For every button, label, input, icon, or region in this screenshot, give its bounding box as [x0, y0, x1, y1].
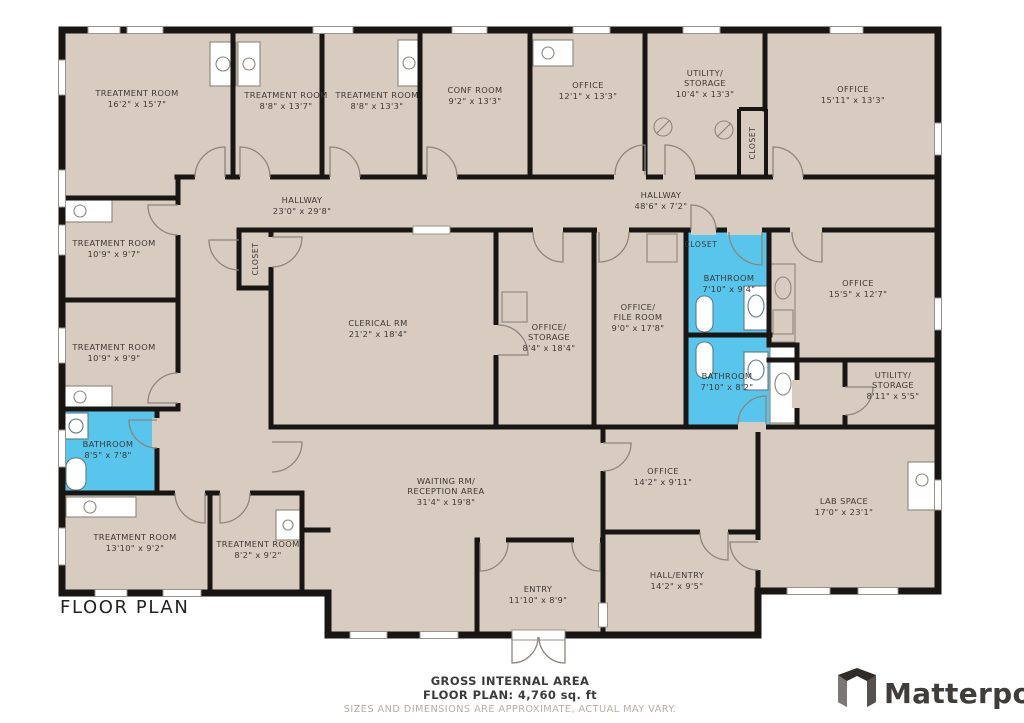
svg-text:8'4" x 18'4": 8'4" x 18'4"	[523, 343, 576, 353]
svg-text:10'9" x 9'9": 10'9" x 9'9"	[88, 353, 141, 363]
svg-text:8'2" x 9'2": 8'2" x 9'2"	[234, 550, 281, 560]
svg-text:11'10" x 8'9": 11'10" x 8'9"	[509, 595, 568, 605]
svg-text:STORAGE: STORAGE	[872, 380, 914, 390]
room-label-bathroom-1: BATHROOM 7'10" x 9'4"	[703, 273, 756, 294]
svg-text:10'4" x 13'3": 10'4" x 13'3"	[676, 89, 735, 99]
pass-through-window	[413, 226, 450, 234]
svg-text:8'11" x 5'5": 8'11" x 5'5"	[867, 391, 920, 401]
svg-text:OFFICE: OFFICE	[647, 466, 679, 476]
closet-label-middle: CLOSET	[251, 242, 260, 275]
svg-text:8'5" x 7'8": 8'5" x 7'8"	[84, 450, 131, 460]
svg-text:17'0" x 23'1": 17'0" x 23'1"	[815, 507, 874, 517]
svg-text:HALLWAY: HALLWAY	[282, 195, 323, 205]
svg-text:BATHROOM: BATHROOM	[83, 439, 134, 449]
svg-text:TREATMENT ROOM: TREATMENT ROOM	[94, 88, 178, 98]
room-label-hallway-east: HALLWAY 48'6" x 7'2"	[635, 190, 688, 211]
svg-text:48'6" x 7'2": 48'6" x 7'2"	[635, 201, 688, 211]
svg-text:WAITING RM/: WAITING RM/	[417, 476, 475, 486]
svg-text:12'1" x 13'3": 12'1" x 13'3"	[559, 91, 618, 101]
entry-double-door	[512, 637, 538, 663]
svg-text:OFFICE/: OFFICE/	[621, 302, 656, 312]
closet-label-top-right: CLOSET	[748, 126, 757, 159]
toilet	[66, 458, 86, 490]
disclaimer-text: SIZES AND DIMENSIONS ARE APPROXIMATE, AC…	[344, 704, 677, 715]
svg-text:13'10" x 9'2": 13'10" x 9'2"	[106, 543, 165, 553]
matterport-logo-icon	[838, 668, 876, 707]
matterport-logo: Matterport	[838, 668, 1024, 710]
svg-text:7'10" x 9'4": 7'10" x 9'4"	[703, 284, 756, 294]
toilet	[696, 296, 713, 332]
svg-text:7'10" x 8'2": 7'10" x 8'2"	[701, 382, 754, 392]
room-label-treatment-room-1: TREATMENT ROOM 16'2" x 15'7"	[94, 88, 178, 109]
svg-text:BATHROOM: BATHROOM	[702, 371, 753, 381]
svg-text:STORAGE: STORAGE	[528, 332, 570, 342]
room-label-clerical-room: CLERICAL RM 21'2" x 18'4"	[348, 318, 407, 339]
svg-text:HALLWAY: HALLWAY	[641, 190, 682, 200]
svg-text:14'2" x 9'11": 14'2" x 9'11"	[634, 477, 693, 487]
room-label-bathroom-3: BATHROOM 8'5" x 7'8"	[83, 439, 134, 460]
room-label-lab-space: LAB SPACE 17'0" x 23'1"	[815, 496, 874, 517]
svg-text:CONF ROOM: CONF ROOM	[447, 85, 502, 95]
sink-counter	[66, 497, 136, 517]
cabinet	[647, 234, 677, 262]
svg-text:BATHROOM: BATHROOM	[704, 273, 755, 283]
shelf	[502, 292, 527, 322]
svg-text:RECEPTION AREA: RECEPTION AREA	[407, 486, 484, 496]
svg-text:15'11" x 13'3": 15'11" x 13'3"	[821, 95, 885, 105]
room-label-hall-entry: HALL/ENTRY 14'2" x 9'5"	[650, 570, 705, 591]
closet-label-bathroom: CLOSET	[684, 240, 717, 249]
svg-text:8'8" x 13'3": 8'8" x 13'3"	[351, 101, 404, 111]
svg-text:21'2" x 18'4": 21'2" x 18'4"	[349, 329, 408, 339]
svg-text:ENTRY: ENTRY	[524, 584, 553, 594]
floor-plan-area-value: FLOOR PLAN: 4,760 sq. ft	[423, 688, 597, 702]
svg-text:LAB SPACE: LAB SPACE	[820, 496, 868, 506]
svg-text:23'0" x 29'8": 23'0" x 29'8"	[273, 206, 332, 216]
svg-text:OFFICE: OFFICE	[572, 80, 604, 90]
svg-text:UTILITY/: UTILITY/	[687, 68, 723, 78]
sink-counter	[64, 386, 112, 408]
svg-text:14'2" x 9'5": 14'2" x 9'5"	[651, 581, 704, 591]
svg-text:TREATMENT ROOM: TREATMENT ROOM	[243, 90, 327, 100]
svg-text:8'8" x 13'7": 8'8" x 13'7"	[260, 101, 313, 111]
svg-text:TREATMENT ROOM: TREATMENT ROOM	[71, 342, 155, 352]
sink-counter	[64, 200, 112, 222]
svg-text:UTILITY/: UTILITY/	[875, 370, 911, 380]
page-title: FLOOR PLAN	[60, 597, 189, 618]
room-label-conf-room: CONF ROOM 9'2" x 13'3"	[447, 85, 502, 106]
svg-text:CLERICAL RM: CLERICAL RM	[348, 318, 407, 328]
room-label-bathroom-2: BATHROOM 7'10" x 8'2"	[701, 371, 754, 392]
svg-text:HALL/ENTRY: HALL/ENTRY	[650, 570, 705, 580]
svg-text:15'5" x 12'7": 15'5" x 12'7"	[829, 289, 888, 299]
room-label-treatment-room-6: TREATMENT ROOM 13'10" x 9'2"	[92, 532, 176, 553]
svg-text:16'2" x 15'7": 16'2" x 15'7"	[108, 99, 167, 109]
svg-text:TREATMENT ROOM: TREATMENT ROOM	[71, 238, 155, 248]
floor-plan-page: TREATMENT ROOM 16'2" x 15'7" TREATMENT R…	[0, 0, 1024, 723]
svg-text:STORAGE: STORAGE	[684, 78, 726, 88]
svg-text:OFFICE: OFFICE	[842, 278, 874, 288]
floor-plan-image: TREATMENT ROOM 16'2" x 15'7" TREATMENT R…	[0, 0, 1024, 723]
gross-internal-area-label: GROSS INTERNAL AREA	[431, 674, 590, 688]
svg-text:TREATMENT ROOM: TREATMENT ROOM	[334, 90, 418, 100]
svg-text:TREATMENT ROOM: TREATMENT ROOM	[215, 539, 299, 549]
svg-text:OFFICE: OFFICE	[837, 84, 869, 94]
svg-text:31'4" x 19'8": 31'4" x 19'8"	[417, 497, 476, 507]
svg-text:9'2" x 13'3": 9'2" x 13'3"	[449, 96, 502, 106]
matterport-logo-text: Matterport	[884, 677, 1024, 710]
svg-text:TREATMENT ROOM: TREATMENT ROOM	[92, 532, 176, 542]
svg-text:10'9" x 9'7": 10'9" x 9'7"	[88, 249, 141, 259]
svg-text:9'0" x 17'8": 9'0" x 17'8"	[612, 323, 665, 333]
svg-text:FILE ROOM: FILE ROOM	[614, 312, 663, 322]
svg-text:OFFICE/: OFFICE/	[532, 322, 567, 332]
room-label-waiting-reception: WAITING RM/ RECEPTION AREA 31'4" x 19'8"	[407, 476, 484, 507]
